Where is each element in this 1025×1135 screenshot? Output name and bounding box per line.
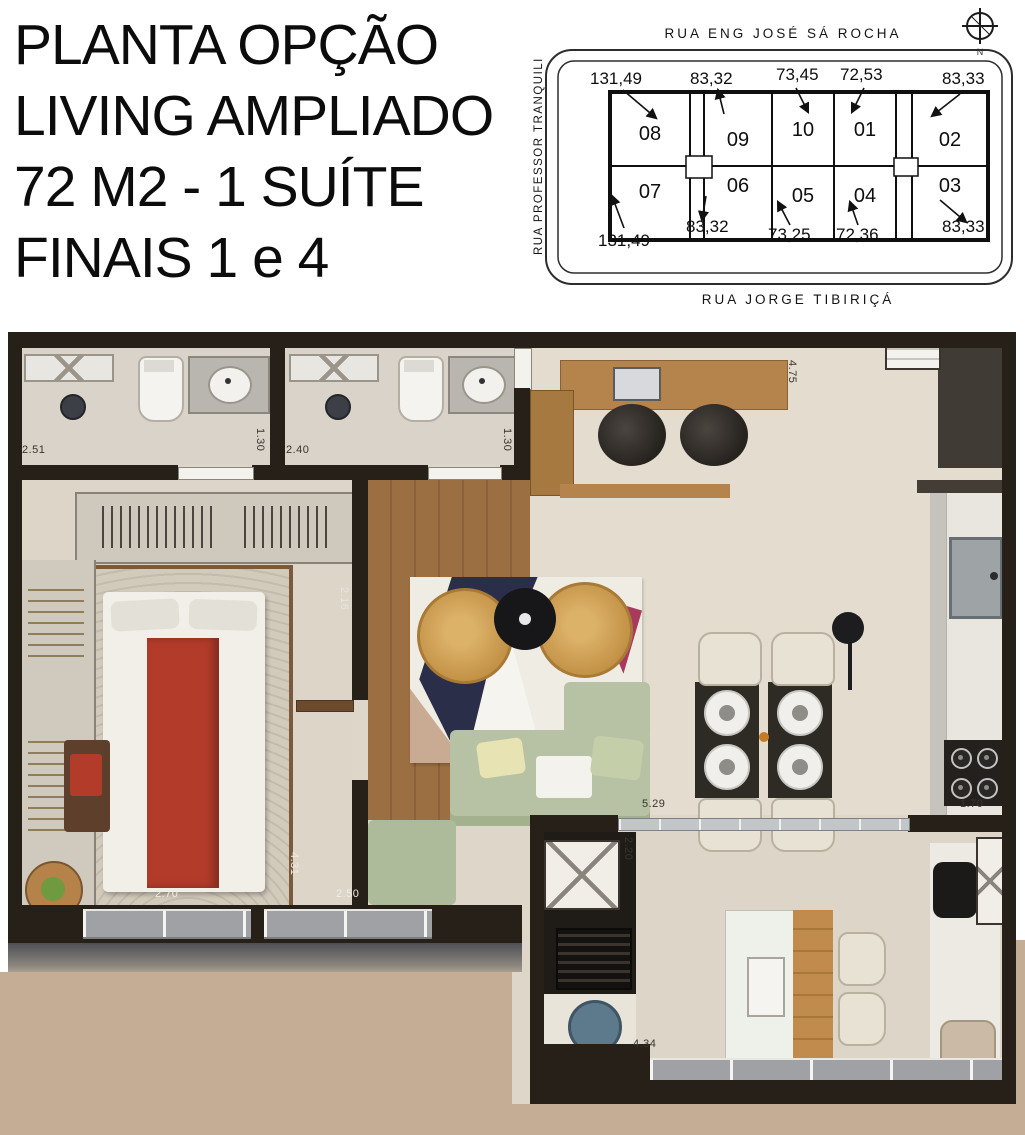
pillow [188,599,257,631]
sink-icon [208,366,252,404]
unit-10: 10 [792,119,814,141]
shaft-small [976,837,1004,925]
closet-left [20,560,96,905]
bed-runner [147,638,219,888]
page-title: PLANTA OPÇÃO LIVING AMPLIADO 72 M2 - 1 S… [14,10,534,294]
floor-lamp-shade [832,612,864,644]
candle-icon [759,732,769,742]
background-left [0,972,512,1135]
bed [103,592,265,892]
wall-top [8,332,1016,348]
sink-icon [462,366,506,404]
compass-north-label: N [977,47,984,57]
background-right [1016,940,1025,1135]
shower-suite [24,354,114,382]
faucet-icon [479,378,485,384]
area-04: 72,36 [836,225,879,244]
toilet-2 [398,356,444,422]
wall-terrace-sep-a [530,815,618,832]
closet-top [75,492,359,564]
dim-terrace-width: 4.34 [633,1038,656,1050]
burner-icon [977,748,998,769]
sofa-throw [536,756,592,798]
dim-bath2-depth: 1.30 [501,428,513,451]
wall-shelf [560,484,730,498]
bench-cushion [70,754,102,796]
shaft [544,840,620,910]
wall-under-baths-b [252,465,428,480]
plate-icon [777,744,823,790]
dining-table [695,682,759,798]
unit-07: 07 [639,181,661,203]
terrace-chair [838,932,886,986]
bath1-door-leaf [178,467,254,480]
bedroom-window [83,909,251,939]
office-desk [560,360,788,410]
showerhead-icon [325,394,351,420]
wall-bedroom-right-b [352,780,368,905]
unit-05: 05 [792,185,814,207]
hangers-icon [95,506,215,548]
area-10: 73,45 [776,65,819,84]
showerhead-icon [60,394,86,420]
unit-08: 08 [639,123,661,145]
area-02: 83,33 [942,69,985,88]
floorplan-page: { "title": { "lines": ["PLANTA OPÇÃO", "… [0,0,1025,1135]
unit-06: 06 [727,175,749,197]
ottoman [368,820,456,905]
area-07: 131,49 [598,231,650,250]
dim-bath1-depth: 1.30 [254,428,266,451]
kitchen-counter-edge [917,480,1002,493]
kitchen-sink [949,537,1003,619]
sliding-door-glass [618,818,910,831]
hangers-icon [237,506,333,548]
wall-under-baths-c [500,465,530,480]
living-window [264,909,432,939]
vanity-2 [448,356,518,414]
unit-03: 03 [939,175,961,197]
kitchen-tall-cabinet [938,348,1002,468]
street-left: RUA PROFESSOR TRANQUILI [533,57,545,255]
title-line-4: FINAIS 1 e 4 [14,223,534,294]
office-chair [680,404,748,466]
area-01: 72,53 [840,65,883,84]
street-top: RUA ENG JOSÉ SÁ ROCHA [664,26,901,41]
sofa-pillow [590,735,645,781]
dim-bed-window: 2.50 [336,888,359,900]
area-05: 73,25 [768,225,811,244]
dim-hall-width: 2.16 [338,587,350,610]
coffee-table [494,588,556,650]
dining-table [768,682,832,798]
unit-04: 04 [854,185,876,207]
terrace-chair [838,992,886,1046]
bedside-bench [64,740,110,832]
dim-bed-depth: 4.31 [288,852,300,875]
grill-grate [556,928,632,990]
wall-terrace-sep-b [908,815,1016,832]
unit-01: 01 [854,119,876,141]
site-key-plan: N RUA ENG JOSÉ SÁ ROCHA RUA PROFESSOR TR… [528,0,1025,315]
shelf-icon [28,582,84,666]
table-center [519,613,531,625]
compass-icon [962,8,998,44]
serving-tray [747,957,785,1017]
plate-icon [704,744,750,790]
faucet-icon [990,572,998,580]
dim-kitchen-width: 1.70 [960,798,983,810]
dim-living-width: 5.29 [642,798,665,810]
faucet-icon [225,378,231,384]
dim-service-depth: 2.20 [622,837,634,860]
bedroom-door-leaf [296,700,354,712]
dining-chair [698,632,762,686]
title-line-1: PLANTA OPÇÃO [14,10,534,81]
cooktop [944,740,1002,806]
dining-chair [771,632,835,686]
wall-bath2-right [514,388,530,465]
street-bottom: RUA JORGE TIBIRIÇÁ [702,292,895,307]
burner-icon [951,748,972,769]
wall-bedroom-right-a [352,480,368,700]
sofa-pillow [476,737,527,779]
dim-bath2-width: 2.40 [286,444,309,456]
unit-02: 02 [939,129,961,151]
laptop-icon [613,367,661,401]
plate-icon [704,690,750,736]
building-shadow [8,943,522,972]
vanity-suite [188,356,270,414]
sofa [450,730,650,826]
background-bottom [512,1104,1025,1135]
area-08: 131,49 [590,69,642,88]
title-line-2: LIVING AMPLIADO [14,81,534,152]
plant-icon [41,877,65,901]
unit-09: 09 [727,129,749,151]
office-shelf [530,390,574,496]
wall-bath-divider [270,348,285,465]
dim-living-depth: 4.75 [786,360,798,383]
shower-2 [289,354,379,382]
wall-right [1002,332,1016,1104]
toilet-suite [138,356,184,422]
burner-icon [951,778,972,799]
office-chair [598,404,666,466]
wall-left [8,332,22,972]
sofa-chaise [564,682,650,734]
dim-bath1-width: 2.51 [22,444,45,456]
area-06: 83,32 [686,217,729,236]
plate-icon [777,690,823,736]
area-09: 83,32 [690,69,733,88]
burner-icon [977,778,998,799]
pillow [110,598,179,632]
wall-terrace-left [530,832,544,1080]
terrace-sink-dark [933,862,977,918]
wall-terrace-bottom [530,1080,1016,1104]
building-footprint [610,92,988,240]
dim-bed-width: 2.70 [155,888,178,900]
wall-under-baths-a [8,465,178,480]
toilet-tank [144,360,174,372]
toilet-tank [404,360,434,372]
bath2-door-leaf [428,467,502,480]
entry-door [514,348,532,390]
terrace-table-wood [793,910,833,1060]
title-line-3: 72 M2 - 1 SUÍTE [14,152,534,223]
